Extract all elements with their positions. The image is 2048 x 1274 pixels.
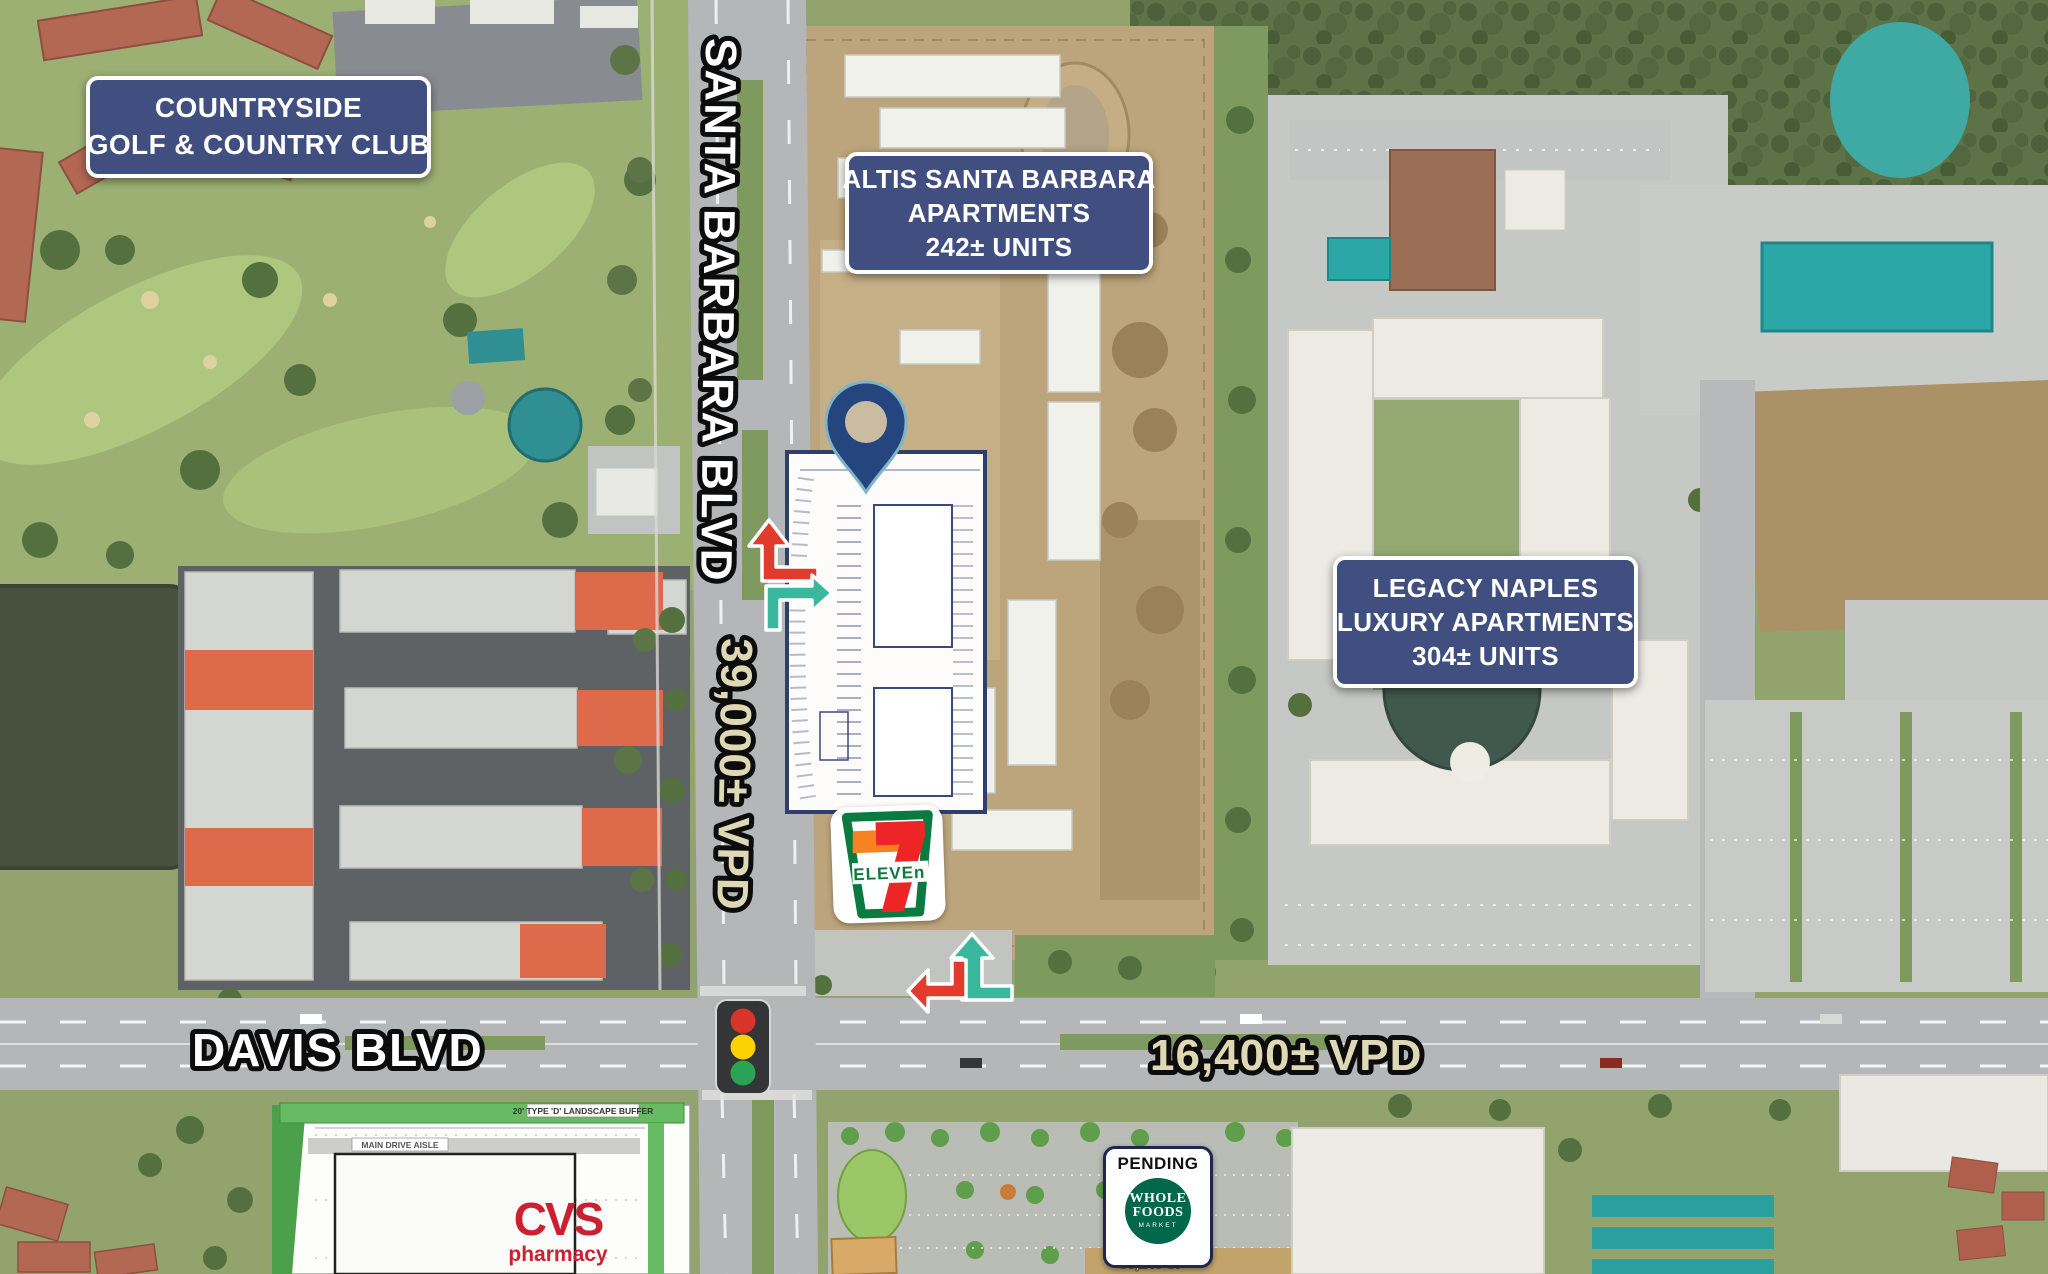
sign-line: LUXURY APARTMENTS (1337, 605, 1634, 639)
pending-status: PENDING (1118, 1154, 1199, 1174)
cvs-name: CVS (498, 1196, 618, 1242)
sign-line: 304± UNITS (1412, 639, 1559, 673)
location-pin-icon (826, 382, 906, 492)
sign-altis-apartments: ALTIS SANTA BARBARA APARTMENTS 242± UNIT… (845, 152, 1153, 274)
seven-eleven-wordmark: ELEVEn (853, 863, 926, 885)
wf-logo-line: FOODS (1133, 1206, 1184, 1220)
whole-foods-logo: WHOLE FOODS MARKET (1125, 1178, 1191, 1244)
sign-line: 242± UNITS (926, 230, 1073, 264)
sign-countryside-golf: COUNTRYSIDE GOLF & COUNTRY CLUB (86, 76, 431, 178)
traffic-light-icon (716, 1000, 770, 1094)
right-out-arrow-west (749, 520, 818, 581)
right-out-arrow-south (908, 960, 966, 1012)
aerial-site-map: 20' TYPE 'D' LANDSCAPE BUFFER MAIN DRIVE… (0, 0, 2048, 1274)
sign-line: APARTMENTS (908, 196, 1091, 230)
wf-logo-line: WHOLE (1130, 1192, 1187, 1206)
sign-line: GOLF & COUNTRY CLUB (87, 127, 431, 164)
access-arrows-south (908, 934, 1012, 1012)
wf-logo-line: MARKET (1138, 1223, 1177, 1230)
sign-legacy-naples: LEGACY NAPLES LUXURY APARTMENTS 304± UNI… (1333, 556, 1638, 688)
right-in-arrow-west (766, 575, 832, 630)
access-arrows-west (749, 520, 832, 630)
cvs-sub: pharmacy (498, 1244, 618, 1265)
sign-line: COUNTRYSIDE (155, 90, 362, 127)
pending-whole-foods-card: PENDING WHOLE FOODS MARKET (1103, 1146, 1213, 1268)
sign-line: ALTIS SANTA BARBARA (842, 162, 1155, 196)
cvs-pharmacy-logo: CVS pharmacy (498, 1196, 618, 1265)
sign-line: LEGACY NAPLES (1373, 571, 1599, 605)
seven-eleven-logo: ELEVEn (830, 804, 946, 924)
